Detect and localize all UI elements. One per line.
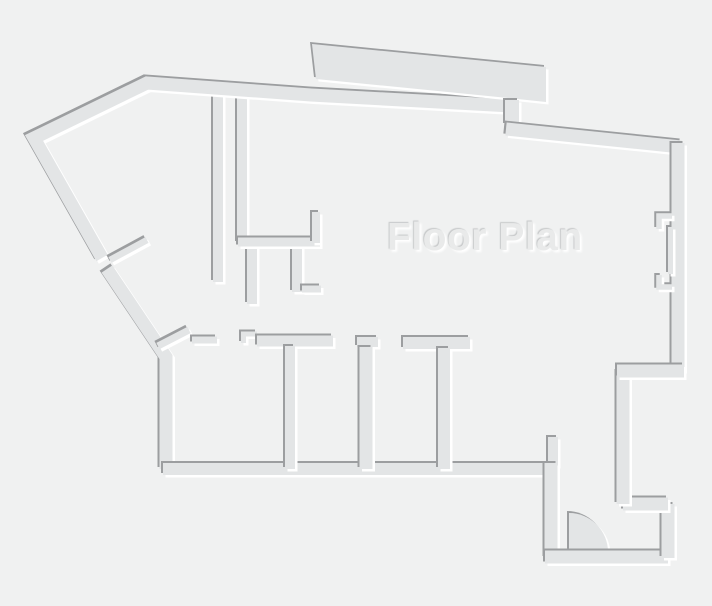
floor-plan-canvas: Floor Plan xyxy=(0,0,712,606)
door-swing xyxy=(569,513,608,552)
floor-plan-title: Floor Plan xyxy=(387,218,583,257)
right-notch-lower xyxy=(659,275,672,287)
exterior-top-right-wall xyxy=(506,129,681,147)
door-leaf-left-diagonal xyxy=(110,240,147,260)
floor-plan-drawing xyxy=(0,0,712,606)
walls-group xyxy=(34,44,684,558)
rooms-top-wall-step xyxy=(244,334,258,343)
door-leaf-rooms xyxy=(158,330,189,346)
exterior-left-diagonal-lower xyxy=(107,269,166,469)
